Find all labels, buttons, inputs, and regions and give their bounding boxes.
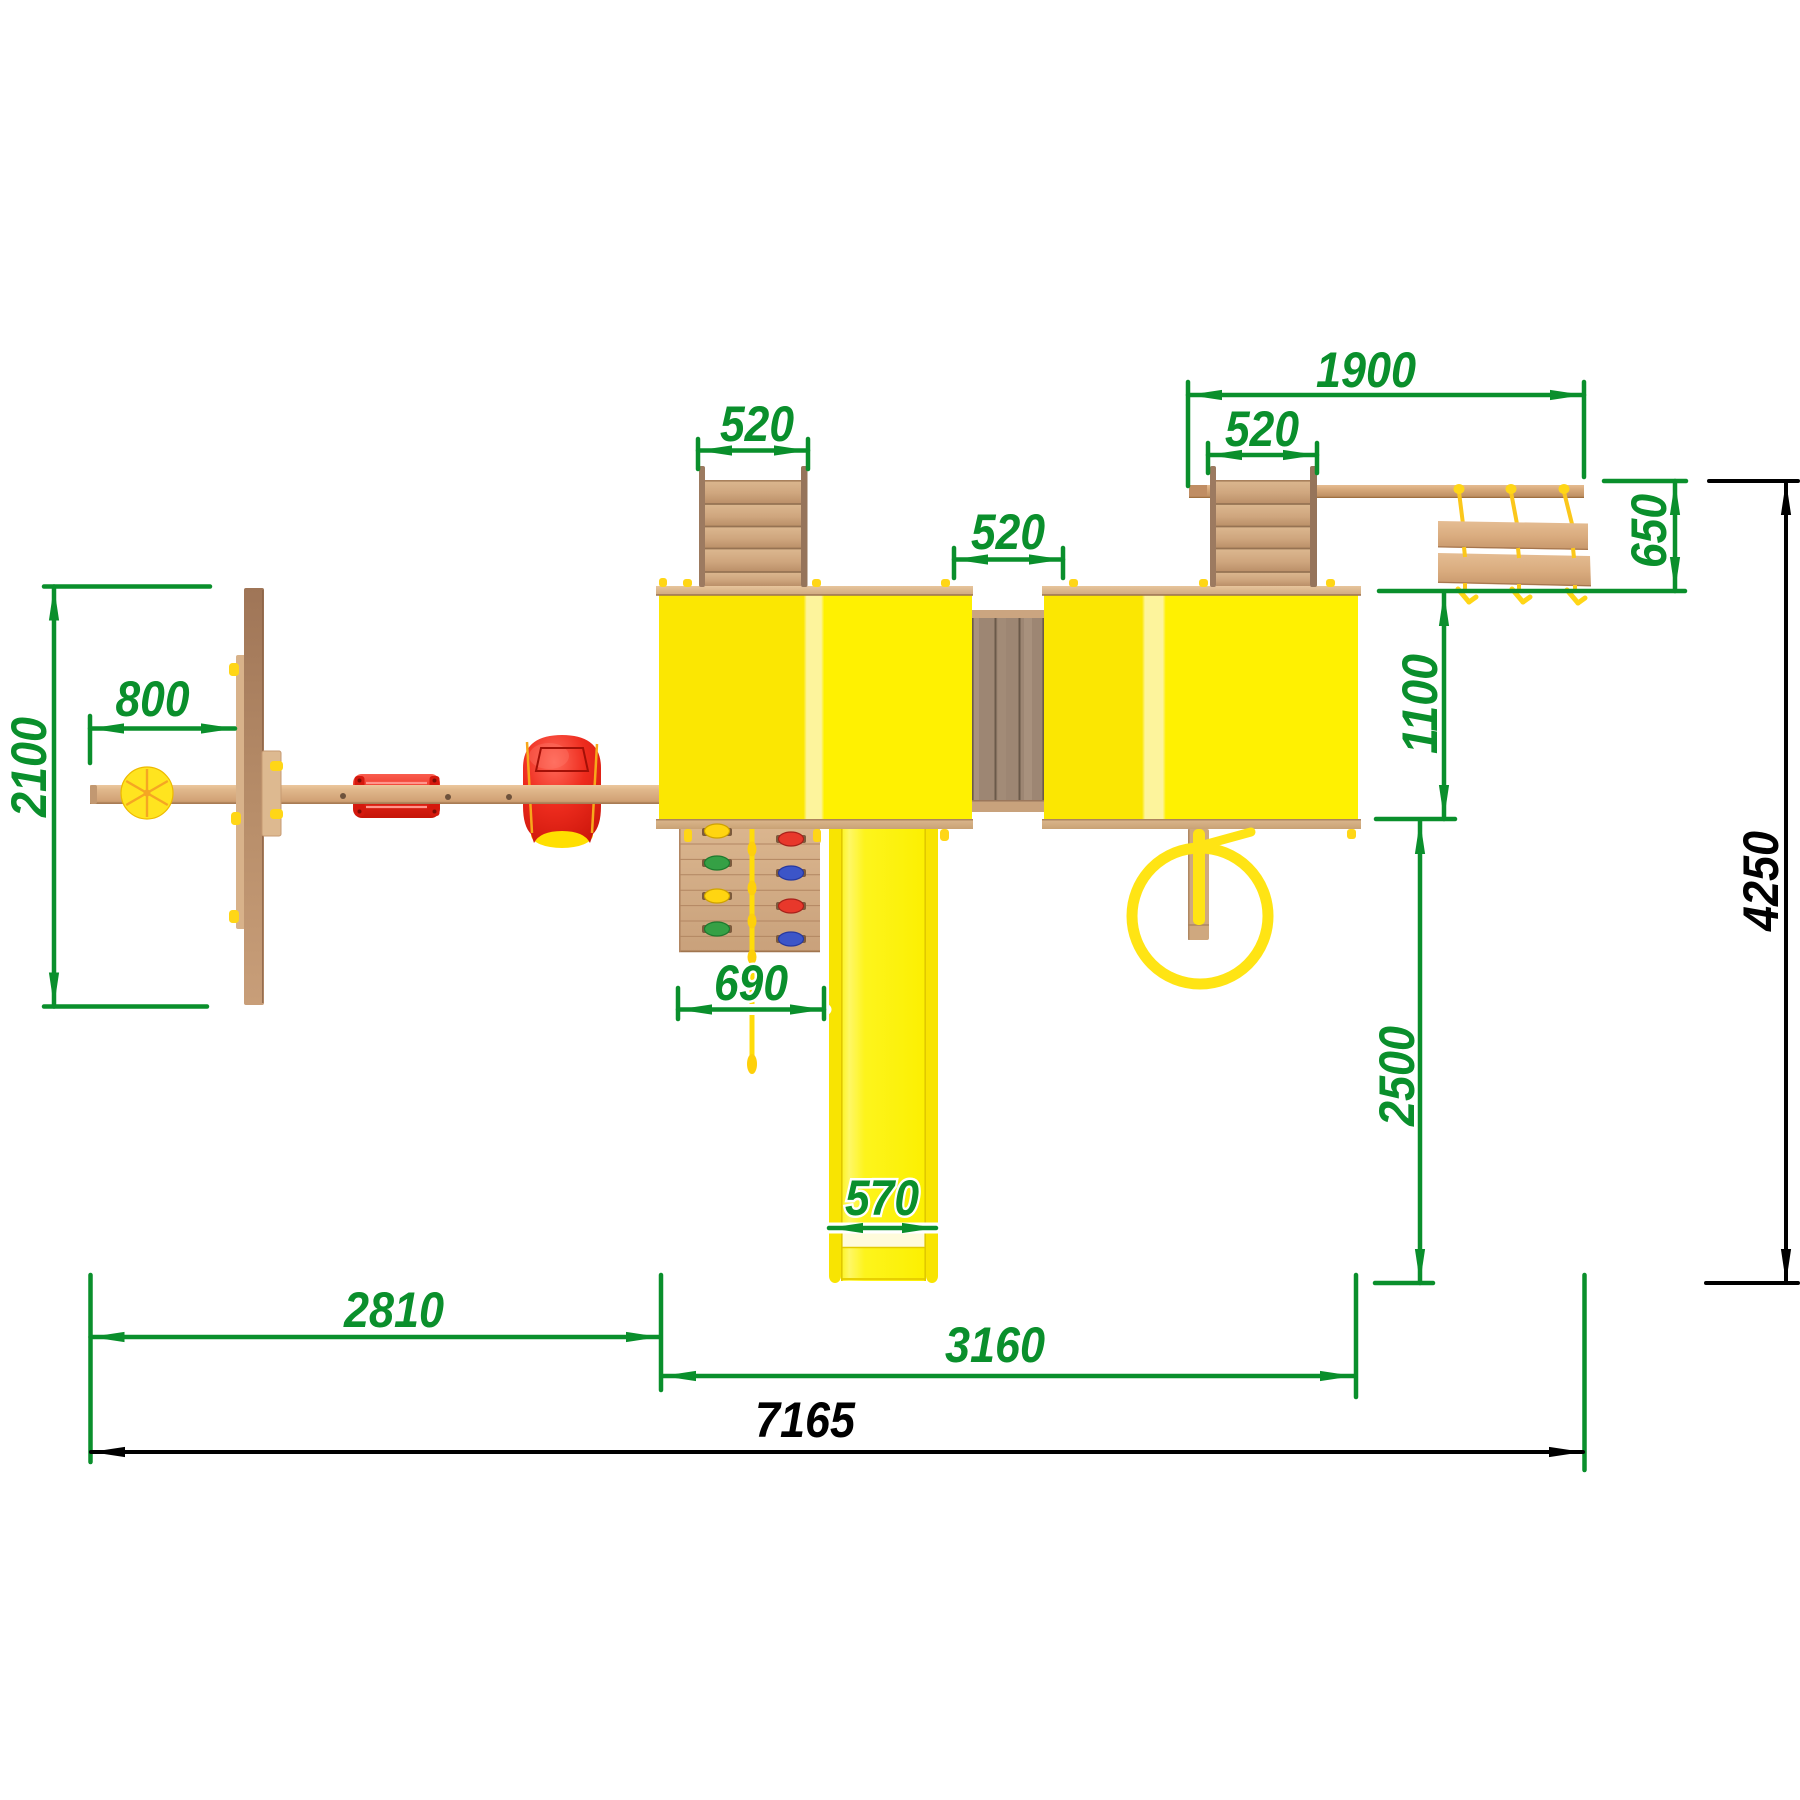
svg-text:650: 650 <box>1621 494 1677 568</box>
svg-text:2810: 2810 <box>343 1282 444 1338</box>
svg-text:520: 520 <box>971 504 1045 560</box>
svg-text:800: 800 <box>116 671 190 727</box>
svg-text:1100: 1100 <box>1392 654 1448 754</box>
svg-text:2500: 2500 <box>1369 1026 1425 1127</box>
svg-text:570: 570 <box>845 1170 919 1226</box>
svg-text:1900: 1900 <box>1316 342 1416 398</box>
svg-text:690: 690 <box>714 955 788 1011</box>
svg-text:2100: 2100 <box>1 717 57 818</box>
svg-text:520: 520 <box>1225 401 1299 457</box>
svg-text:520: 520 <box>720 396 794 452</box>
svg-text:3160: 3160 <box>945 1317 1045 1373</box>
svg-text:4250: 4250 <box>1733 831 1789 932</box>
svg-text:7165: 7165 <box>755 1392 856 1448</box>
